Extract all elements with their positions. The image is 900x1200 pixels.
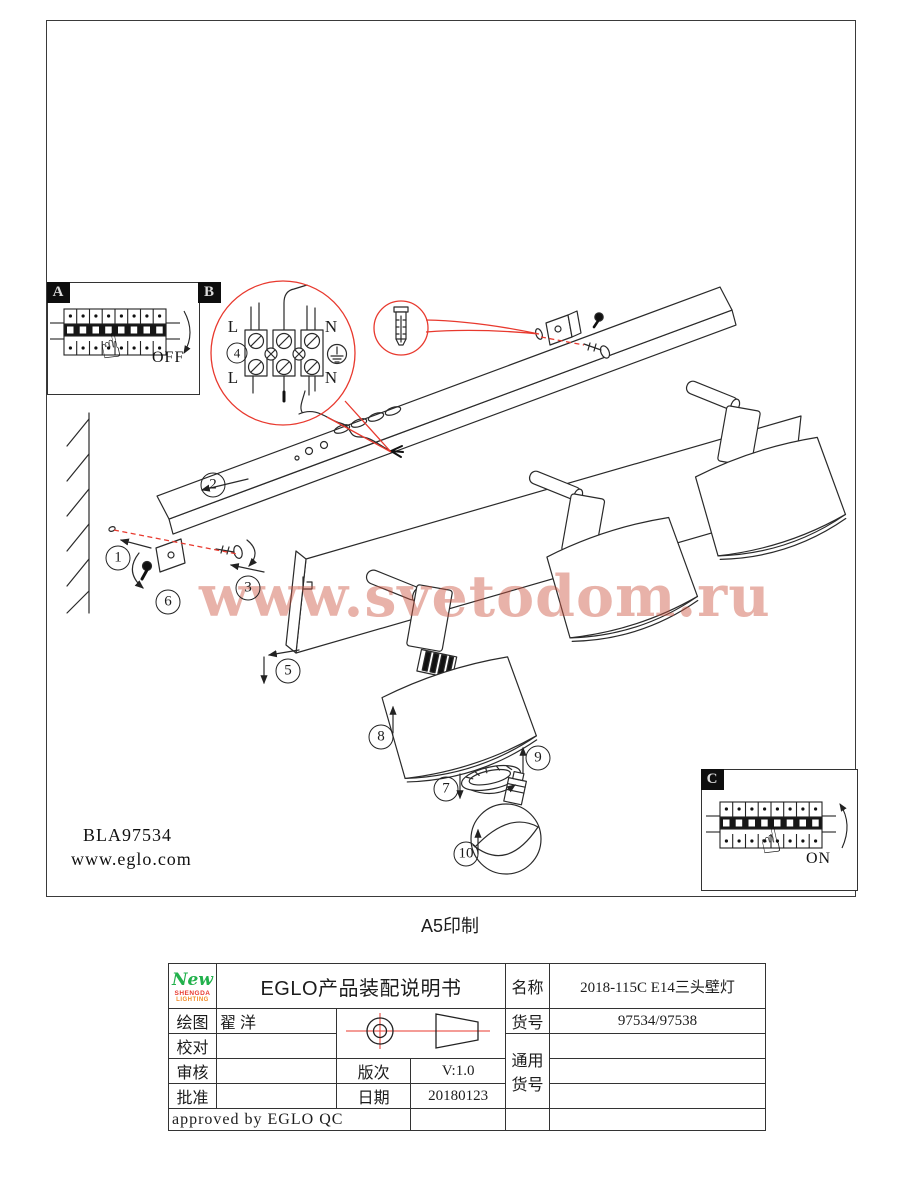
common-item-label: 通用 货号 (506, 1034, 550, 1109)
eglo-website: www.eglo.com (71, 849, 192, 870)
drawing-frame: www.svetodom.ru A (46, 20, 856, 897)
on-label: ON (806, 850, 831, 868)
breaker-off-drawing (50, 295, 198, 399)
step-1-marker: 1 (106, 546, 131, 571)
instruction-sheet: { "diagram": { "panel_a": {"label": "A",… (0, 0, 900, 1200)
projection-symbol (340, 1010, 502, 1052)
model-code: BLA97534 (83, 825, 172, 846)
empty-cell-2 (506, 1109, 550, 1131)
version-value: V:1.0 (411, 1059, 506, 1084)
terminal-n-bottom: N (325, 368, 337, 388)
common-value-row1 (550, 1034, 766, 1059)
anchor-detail (394, 307, 408, 345)
common-label-line1: 通用 (509, 1047, 546, 1071)
step-5-marker: 5 (276, 659, 301, 684)
name-value: 2018-115C E14三头壁灯 (550, 964, 766, 1009)
empty-cell-1 (411, 1109, 506, 1131)
lamp-3 (685, 379, 850, 569)
approve-label: 批准 (169, 1084, 217, 1109)
step-10-marker: 10 (454, 842, 479, 867)
empty-cell-3 (550, 1109, 766, 1131)
date-label: 日期 (337, 1084, 411, 1109)
common-value-row3 (550, 1084, 766, 1109)
watermark: www.svetodom.ru (199, 563, 771, 630)
projection-symbol-cell (337, 1009, 506, 1059)
step-6-marker: 6 (156, 590, 181, 615)
print-note: A5印制 (0, 912, 900, 938)
draw-value: 翟 洋 (217, 1009, 337, 1034)
step-3-marker: 3 (236, 576, 261, 601)
off-label: OFF (152, 349, 184, 367)
terminal-l-top: L (228, 317, 238, 337)
step-4-marker: 4 (227, 343, 248, 364)
step-2-marker: 2 (201, 473, 226, 498)
logo-script-text: New (172, 970, 213, 990)
panel-c-box: C (701, 769, 858, 891)
step-8-marker: 8 (369, 725, 394, 750)
common-value-row2 (550, 1059, 766, 1084)
approved-note: approved by EGLO QC (169, 1109, 411, 1131)
logo-cell: New SHENGDA LIGHTING (169, 964, 217, 1009)
step-7-marker: 7 (434, 777, 459, 802)
review-value (217, 1059, 337, 1084)
assembly-diagram (47, 21, 855, 896)
panel-c-label: C (701, 769, 724, 790)
logo-sub-text: LIGHTING (172, 997, 213, 1003)
step-9-marker: 9 (526, 746, 551, 771)
date-value: 20180123 (411, 1084, 506, 1109)
item-label: 货号 (506, 1009, 550, 1034)
name-label: 名称 (506, 964, 550, 1009)
check-value (217, 1034, 337, 1059)
common-label-line2: 货号 (509, 1071, 546, 1095)
title-block: New SHENGDA LIGHTING EGLO产品装配说明书 名称 2018… (168, 963, 766, 1131)
panel-a-box: A (47, 282, 200, 395)
approve-value (217, 1084, 337, 1109)
shengda-logo: New SHENGDA LIGHTING (172, 970, 213, 1003)
item-value: 97534/97538 (550, 1009, 766, 1034)
logo-name-text: SHENGDA (172, 990, 213, 997)
version-label: 版次 (337, 1059, 411, 1084)
wall-hatch (67, 413, 89, 613)
panel-b-label: B (198, 282, 221, 303)
terminal-l-bottom: L (228, 368, 238, 388)
check-label: 校对 (169, 1034, 217, 1059)
terminal-n-top: N (325, 317, 337, 337)
review-label: 审核 (169, 1059, 217, 1084)
draw-label: 绘图 (169, 1009, 217, 1034)
sheet-title: EGLO产品装配说明书 (217, 964, 506, 1009)
